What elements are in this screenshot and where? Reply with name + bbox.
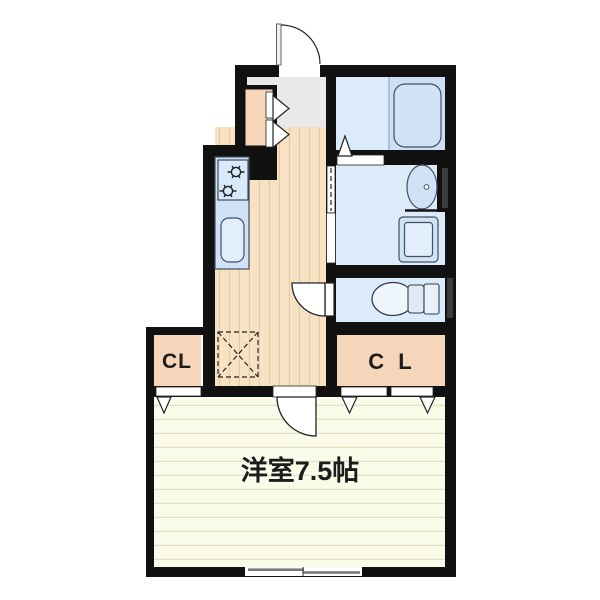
washroom-slide-door-pocket bbox=[327, 166, 335, 213]
toilet-window bbox=[447, 278, 453, 318]
window-sash-right bbox=[303, 571, 360, 574]
closet-left-door-strip bbox=[156, 387, 201, 396]
entrance-door bbox=[277, 24, 321, 77]
basin-faucet-icon bbox=[424, 185, 429, 190]
closet-left-label: CL bbox=[162, 350, 192, 373]
wall-top bbox=[235, 65, 456, 77]
wall-closet-left-top bbox=[146, 327, 215, 335]
shoe-closet-door-strip-2 bbox=[266, 120, 273, 147]
toilet-door-leaf bbox=[325, 283, 334, 316]
window-sash-left bbox=[248, 568, 304, 571]
wall-closet-right-left bbox=[326, 322, 337, 397]
kitchen-sink bbox=[221, 218, 244, 262]
entrance-door-swing-arc bbox=[281, 25, 320, 64]
wall-toilet-bottom bbox=[326, 322, 446, 335]
floor-plan-svg: CL C L 洋室7.5帖 bbox=[0, 0, 600, 600]
toilet-seat bbox=[408, 285, 424, 313]
washroom-window bbox=[442, 168, 448, 208]
wall-left-lower bbox=[146, 327, 154, 577]
toilet-tank bbox=[424, 284, 439, 314]
entrance-threshold bbox=[279, 65, 320, 77]
wall-kitchen-left bbox=[203, 145, 215, 397]
floor-plan-page: CL C L 洋室7.5帖 bbox=[0, 0, 600, 600]
room-door-threshold bbox=[273, 386, 316, 397]
western-room-label: 洋室7.5帖 bbox=[241, 455, 360, 486]
washroom-doorway bbox=[327, 213, 336, 263]
entrance-door-leaf bbox=[277, 24, 282, 65]
shoe-closet-door-strip-1 bbox=[266, 92, 273, 118]
sliding-window bbox=[245, 567, 362, 576]
wash-basin bbox=[407, 165, 437, 209]
closet-right-door-strip-2 bbox=[391, 387, 433, 396]
bathtub bbox=[394, 84, 441, 147]
wall-washroom-toilet bbox=[336, 265, 446, 278]
washing-machine-pan-inner bbox=[405, 223, 433, 257]
wall-closet-block bbox=[247, 145, 277, 180]
closet-right-label: C L bbox=[368, 349, 415, 374]
closet-right-door-strip-1 bbox=[341, 387, 387, 396]
gas-stove bbox=[218, 160, 248, 200]
wall-right bbox=[445, 65, 456, 577]
